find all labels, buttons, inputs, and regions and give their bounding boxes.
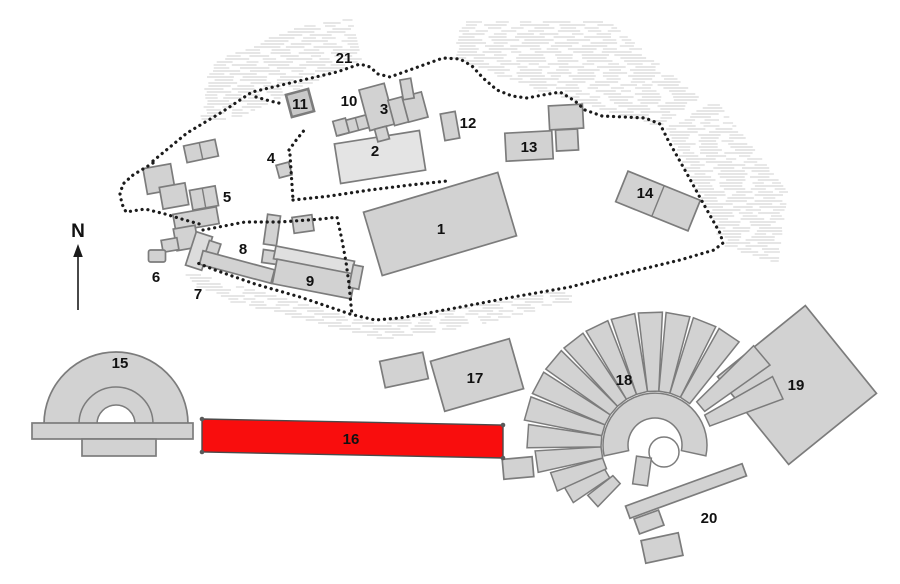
building-11-label: 11: [292, 96, 308, 113]
north-label: N: [71, 221, 85, 242]
building-20-south[interactable]: [641, 533, 683, 563]
building-13-north[interactable]: [548, 104, 583, 130]
building-13-east-shape[interactable]: [555, 129, 578, 151]
building-20-south-shape[interactable]: [641, 533, 683, 563]
building-10-end[interactable]: [333, 118, 349, 136]
selection-handle[interactable]: [200, 450, 205, 455]
old-temple-west-line: [290, 155, 293, 200]
building-3-label: 3: [380, 101, 388, 118]
building-5-b[interactable]: [159, 183, 188, 209]
building-10-label: 10: [341, 93, 358, 110]
building-16-annex[interactable]: [502, 457, 534, 480]
building-8-label: 8: [239, 241, 247, 258]
building-15-skene[interactable]: [82, 439, 156, 456]
terrace-square[interactable]: [292, 215, 314, 234]
spur-to-building-10: [289, 128, 306, 150]
building-12[interactable]: [440, 111, 459, 140]
building-19-label: 19: [788, 377, 805, 394]
building-3-south[interactable]: [375, 126, 390, 142]
building-20-label: 20: [701, 510, 718, 527]
selection-handle[interactable]: [501, 423, 506, 428]
building-4[interactable]: [276, 162, 292, 178]
acropolis-site-plan-svg: N 1 2 3 4 5 6 7 8 9 10 11 12 13 14 15 16…: [0, 0, 900, 584]
north-arrow-head: [73, 244, 83, 257]
building-16-label: 16: [343, 431, 360, 448]
building-13-east[interactable]: [555, 129, 578, 151]
building-16-annex-shape[interactable]: [502, 457, 534, 480]
building-4-shape[interactable]: [276, 162, 292, 178]
building-3-north-bar[interactable]: [400, 78, 414, 100]
building-2-label: 2: [371, 143, 379, 160]
north-compass: N: [71, 221, 85, 310]
building-18-parodos-wall[interactable]: [633, 456, 652, 486]
building-8-bar-shape[interactable]: [263, 214, 280, 246]
building-21-label: 21: [336, 50, 353, 67]
terrace-square-shape[interactable]: [292, 215, 314, 234]
building-3-north-bar-shape[interactable]: [400, 78, 414, 100]
building-17-label: 17: [467, 370, 484, 387]
hatch-northwest: [201, 20, 362, 119]
selection-handle[interactable]: [200, 417, 205, 422]
building-15-label: 15: [112, 355, 129, 372]
building-14-label: 14: [637, 185, 654, 202]
building-7-label: 7: [194, 286, 202, 303]
building-13-north-shape[interactable]: [548, 104, 583, 130]
building-1-label: 1: [437, 221, 445, 238]
building-17-annex[interactable]: [380, 352, 429, 388]
building-6-label: 6: [152, 269, 160, 286]
hatch-east: [666, 105, 788, 261]
building-5-north-pair[interactable]: [184, 139, 219, 162]
selection-handle[interactable]: [501, 456, 506, 461]
building-10-end-shape[interactable]: [333, 118, 349, 136]
building-15-stage[interactable]: [32, 423, 193, 439]
building-5-label: 5: [223, 189, 231, 206]
building-6[interactable]: [149, 250, 166, 262]
building-12-shape[interactable]: [440, 111, 459, 140]
building-18-label: 18: [616, 372, 633, 389]
building-8-bar[interactable]: [263, 214, 280, 246]
building-9-label: 9: [306, 273, 314, 290]
building-18-orchestra-notch: [649, 437, 679, 467]
building-shapes-layer: [32, 78, 876, 563]
building-6-shape[interactable]: [149, 250, 166, 262]
building-4-label: 4: [267, 150, 276, 167]
building-13-label: 13: [521, 139, 538, 156]
building-17-annex-shape[interactable]: [380, 352, 429, 388]
site-plan-map: N 1 2 3 4 5 6 7 8 9 10 11 12 13 14 15 16…: [0, 0, 900, 584]
hatch-south: [186, 275, 572, 338]
building-14[interactable]: [616, 171, 701, 231]
building-3-south-shape[interactable]: [375, 126, 390, 142]
building-12-label: 12: [460, 115, 477, 132]
building-5-b-shape[interactable]: [159, 183, 188, 209]
